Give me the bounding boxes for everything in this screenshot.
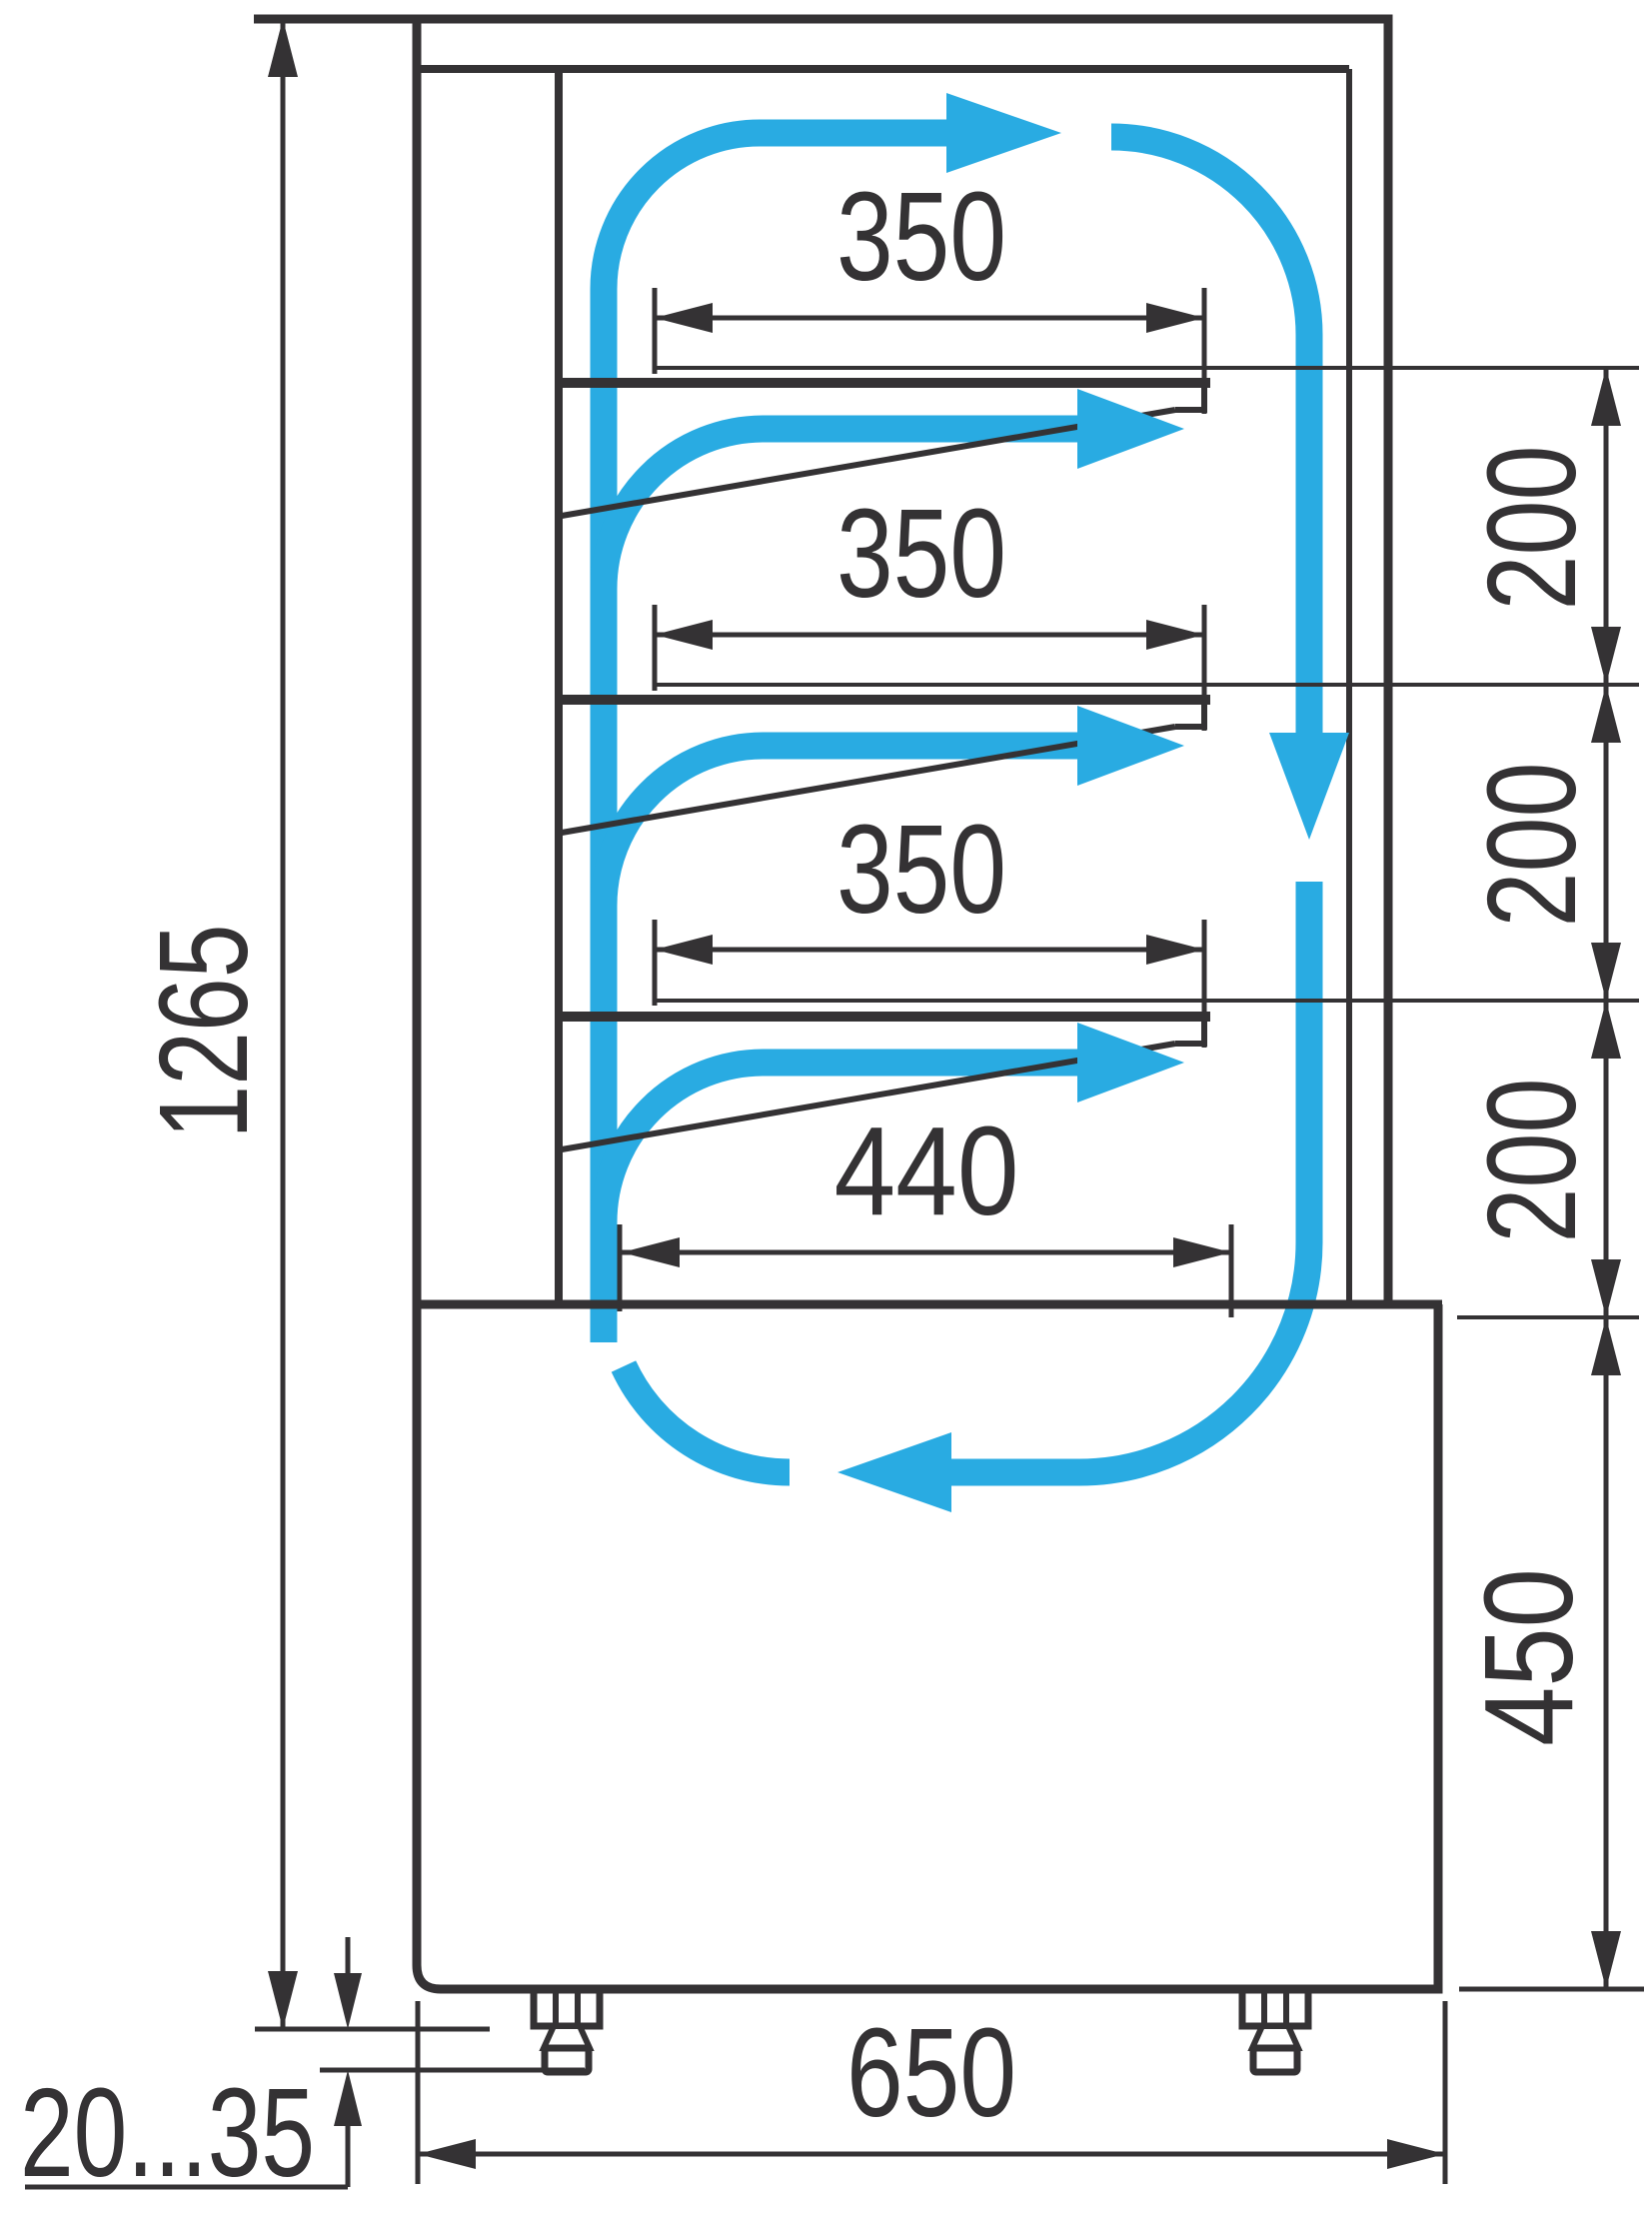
cabinet-top-and-right-wall: [254, 19, 1388, 1304]
arrow-up-368: [1591, 368, 1621, 426]
arrow-right: [1146, 303, 1204, 333]
label-shelf-2-depth: 350: [836, 483, 1006, 624]
technical-drawing-page: 350 350 350 440 1265 200 200 200 450 650…: [0, 0, 1652, 2213]
shelf-1-front-lip: [1175, 388, 1204, 410]
arrow-left: [655, 620, 713, 650]
label-bottom-shelf-depth: 440: [834, 1101, 1019, 1241]
down-arrow-head: [334, 1973, 362, 2029]
front-descender-arrowhead: [1269, 733, 1349, 840]
label-shelf-1-depth: 350: [836, 166, 1006, 307]
arrow-down-1001: [1591, 943, 1621, 1001]
label-base-depth: 650: [846, 2002, 1016, 2143]
shelf-branch-3-arrowhead: [1077, 1023, 1184, 1103]
shelf-2-front-lip: [1175, 705, 1204, 727]
arrow-right: [1146, 935, 1204, 965]
shelf-branch-1-arrowhead: [1077, 389, 1184, 469]
right-leg-foot-pad: [1253, 2048, 1297, 2072]
label-shelf-gap-1: 200: [1461, 446, 1602, 611]
shelf-branch-2-arrowhead: [1077, 706, 1184, 786]
arrow-left: [622, 1237, 680, 1267]
dim-total-height-arrow-bottom: [268, 1971, 298, 2029]
shelf-3-front-lip: [1175, 1022, 1204, 1044]
arrow-right: [1173, 1237, 1231, 1267]
arrow-left: [418, 2139, 476, 2169]
label-total-height: 1265: [133, 925, 274, 1139]
arrow-up-685: [1591, 685, 1621, 743]
label-shelf-gap-2: 200: [1461, 763, 1602, 928]
arrow-down-1318: [1591, 1259, 1621, 1317]
arrow-down-1990: [1591, 1931, 1621, 1989]
arrow-up-1001: [1591, 1001, 1621, 1059]
arrow-right: [1146, 620, 1204, 650]
top-arc-arrowhead: [946, 93, 1061, 173]
airflow-return-arc: [624, 1366, 790, 1472]
dim-total-height-arrow-top: [268, 19, 298, 77]
label-shelf-3-depth: 350: [836, 799, 1006, 940]
right-adjustable-leg: [1242, 1990, 1308, 2072]
left-adjustable-leg: [534, 1990, 600, 2072]
label-base-height: 450: [1458, 1568, 1599, 1746]
label-shelf-gap-3: 200: [1461, 1079, 1602, 1243]
base-return-arrowhead: [837, 1432, 951, 1512]
display-case-airflow-diagram: 350 350 350 440 1265 200 200 200 450 650…: [0, 0, 1652, 2213]
right-leg-bracket: [1242, 1990, 1308, 2026]
arrow-left: [655, 303, 713, 333]
arrow-up-1318: [1591, 1317, 1621, 1375]
arrow-left: [655, 935, 713, 965]
arrow-right: [1387, 2139, 1445, 2169]
up-arrow-head: [334, 2070, 362, 2126]
left-leg-bracket: [534, 1990, 600, 2026]
arrow-down-685: [1591, 627, 1621, 685]
cabinet: [254, 15, 1442, 2072]
label-leg-height-range: 20...35: [20, 2062, 315, 2203]
